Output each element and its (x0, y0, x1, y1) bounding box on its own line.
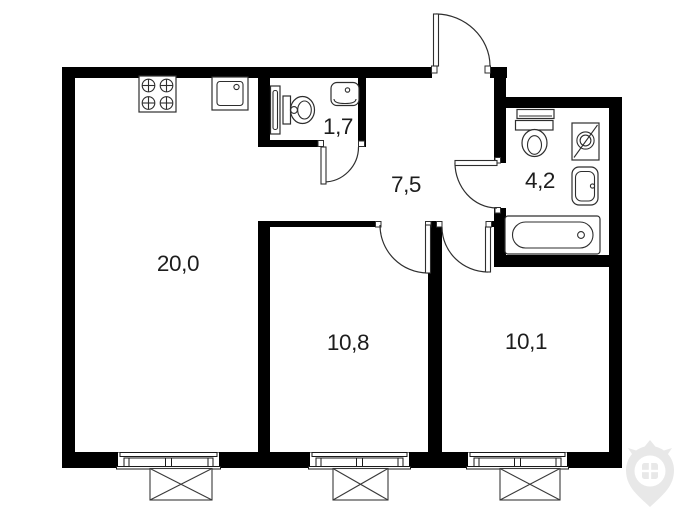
kitchen-fixtures (139, 76, 248, 112)
vent-box-icon (500, 469, 560, 501)
wall-hall-bottom-left (258, 221, 378, 227)
door-jamb (318, 141, 324, 147)
water-heater-icon (271, 86, 281, 134)
bath-shelf-icon (517, 110, 554, 119)
door-jamb (432, 66, 438, 73)
wc-toilet-icon (283, 96, 315, 124)
bath-sink-icon (572, 167, 598, 205)
wall-wc-bottom (258, 140, 323, 147)
entrance-door (432, 14, 491, 73)
window-icon (467, 453, 569, 470)
entrance-door-swing-icon (436, 14, 490, 66)
wc-sink-icon (331, 83, 359, 106)
bath-toilet-icon (516, 121, 554, 157)
door-swing-icon (380, 225, 428, 273)
vent-box-icon (333, 469, 388, 501)
washing-machine-icon (572, 123, 599, 160)
door-swing-icon (442, 227, 488, 272)
room-label-bedroom-left: 10,8 (327, 330, 369, 355)
wall-right-outer (609, 97, 622, 468)
bathtub-icon (505, 216, 600, 254)
wall-wc-left (258, 78, 270, 145)
door-swing-icon (455, 163, 497, 208)
door-swing-icon (324, 147, 359, 182)
door-leaf-icon (455, 161, 497, 166)
wall-bathroom-left-lower (494, 208, 506, 262)
door-leaf-icon (486, 227, 491, 272)
entrance-door-leaf-icon (434, 14, 439, 66)
wall-top-left (62, 67, 432, 78)
stove-icon (139, 76, 176, 112)
door-leaf-icon (426, 225, 431, 273)
wall-left-outer (62, 67, 75, 468)
floor-plan-canvas: 20,0 1,7 7,5 4,2 10,8 10,1 (0, 0, 688, 516)
door-jamb (437, 222, 443, 228)
wall-bathroom-top (494, 97, 622, 108)
windows (117, 453, 569, 470)
wall-bathroom-left-upper (494, 108, 506, 163)
vent-boxes (150, 469, 560, 501)
room-label-bedroom-right: 10,1 (505, 329, 547, 354)
wall-bathroom-bottom (494, 255, 622, 267)
window-icon (309, 453, 411, 470)
vent-box-icon (150, 469, 212, 501)
wall-kitchen-divider (258, 221, 270, 452)
kitchen-sink-icon (212, 77, 248, 110)
bathroom-door (455, 158, 501, 214)
door-jamb (486, 222, 492, 228)
door-jamb (485, 66, 491, 73)
window-icon (117, 453, 221, 470)
room-label-hallway: 7,5 (391, 172, 421, 197)
wc-door (318, 141, 365, 185)
floor-plan-page: 20,0 1,7 7,5 4,2 10,8 10,1 (0, 0, 688, 516)
room-label-toilet-wc: 1,7 (323, 114, 353, 139)
door-leaf-icon (321, 147, 326, 184)
door-jamb (359, 141, 365, 147)
brand-pin-logo-icon (626, 440, 674, 507)
room-label-kitchen-living-room: 20,0 (157, 251, 199, 276)
bedroom-right-door (437, 222, 492, 273)
bedroom-left-door (376, 222, 432, 274)
room-label-bathroom: 4,2 (525, 168, 555, 193)
